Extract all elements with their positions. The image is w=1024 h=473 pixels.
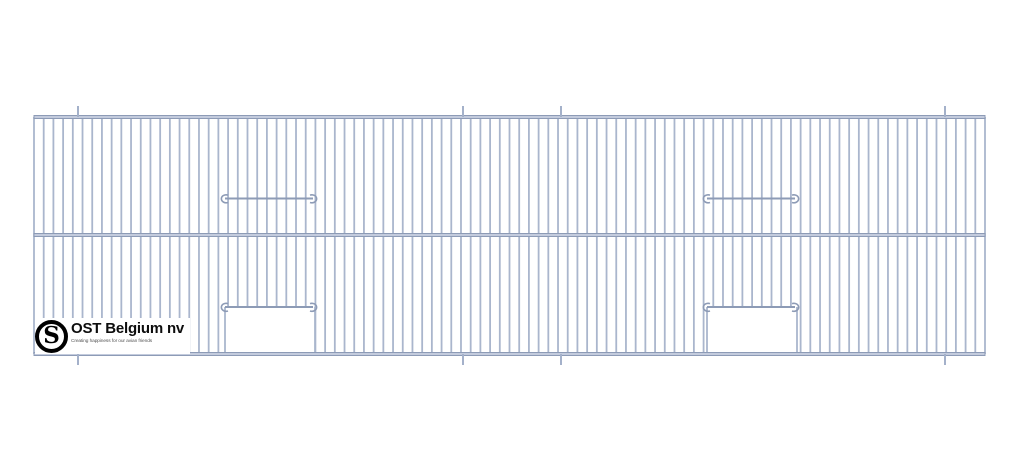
emblem-letter: S [43,324,60,347]
company-name: OST Belgium nv [71,320,184,339]
company-emblem-icon: S [35,320,68,353]
company-logo: S OST Belgium nv Creating happiness for … [35,318,190,354]
company-tagline: Creating happiness for our avian friends [71,339,184,346]
drawing-canvas: S OST Belgium nv Creating happiness for … [0,0,1024,473]
cage-panel-drawing [0,0,1024,473]
horizontal-rail [34,234,985,237]
horizontal-rail [34,116,985,119]
logo-text-block: OST Belgium nv Creating happiness for ou… [71,318,184,345]
